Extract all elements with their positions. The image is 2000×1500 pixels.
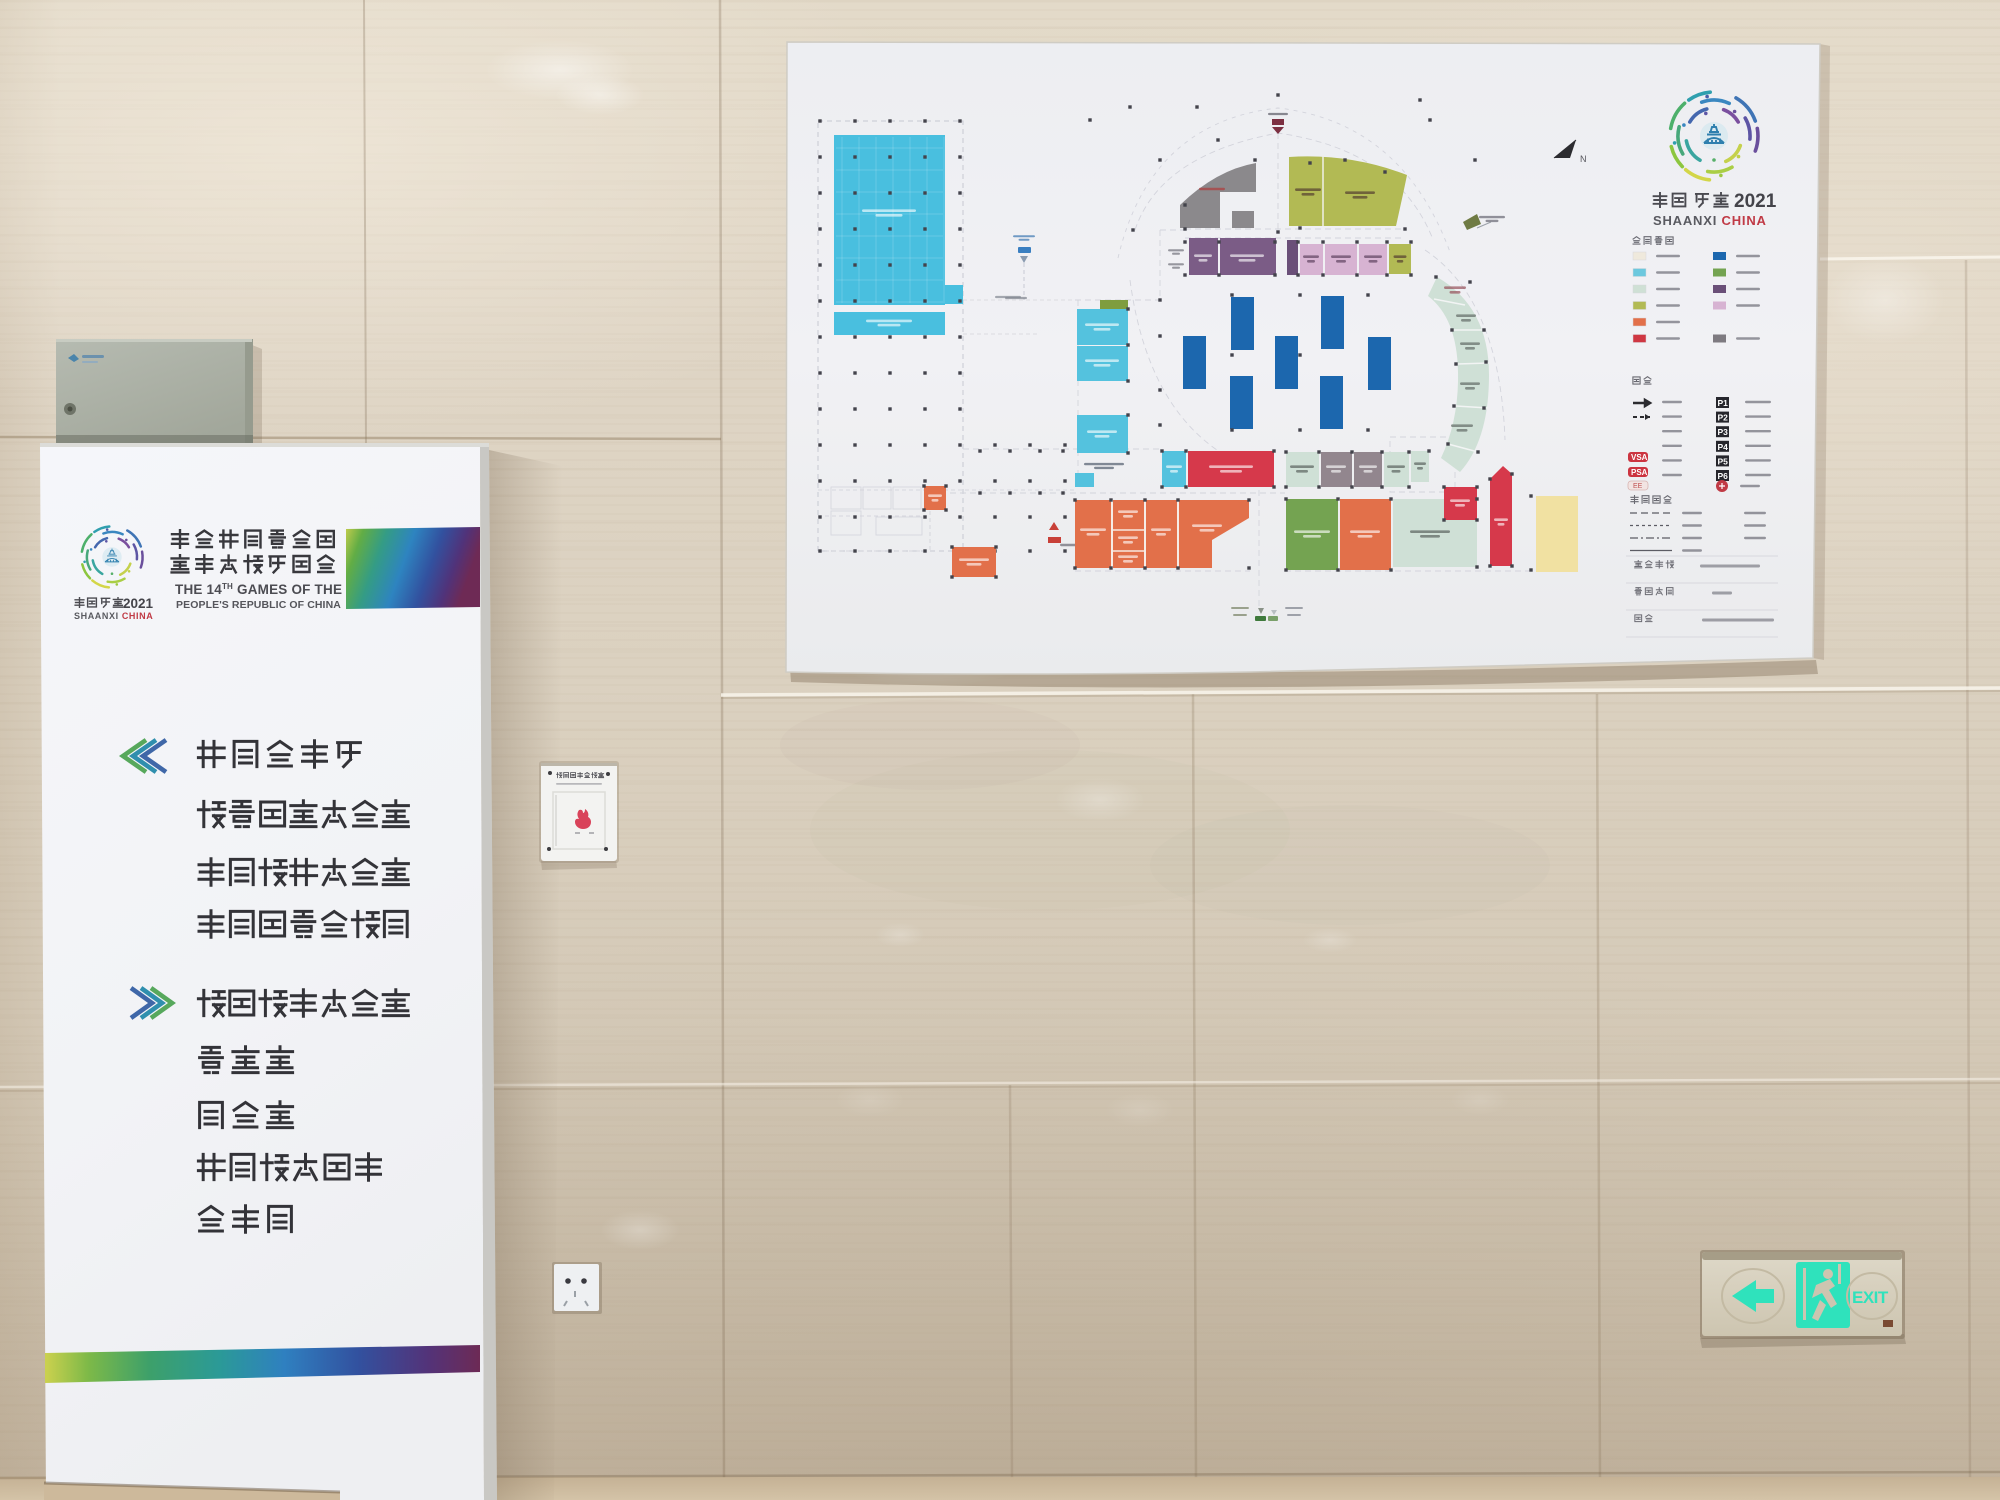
svg-text:P6: P6: [1718, 471, 1729, 481]
svg-text:EE: EE: [1633, 483, 1643, 490]
svg-text:N: N: [1580, 154, 1587, 164]
svg-text:P1: P1: [1718, 398, 1729, 408]
svg-text:2021: 2021: [1734, 191, 1777, 212]
svg-text:SHAANXI CHINA: SHAANXI CHINA: [74, 611, 153, 621]
svg-text:THE 14TH GAMES OF THE: THE 14TH GAMES OF THE: [175, 582, 342, 597]
svg-text:PEOPLE'S REPUBLIC OF CHINA: PEOPLE'S REPUBLIC OF CHINA: [176, 599, 341, 611]
svg-text:P2: P2: [1718, 413, 1729, 423]
svg-text:P5: P5: [1718, 456, 1729, 466]
svg-text:2021: 2021: [123, 596, 154, 611]
svg-text:VSA: VSA: [1631, 453, 1648, 462]
svg-text:EXIT: EXIT: [1852, 1288, 1889, 1307]
svg-text:SHAANXI CHINA: SHAANXI CHINA: [1653, 213, 1767, 228]
svg-text:P4: P4: [1718, 442, 1729, 452]
svg-text:PSA: PSA: [1631, 468, 1648, 477]
svg-text:P3: P3: [1718, 427, 1729, 437]
